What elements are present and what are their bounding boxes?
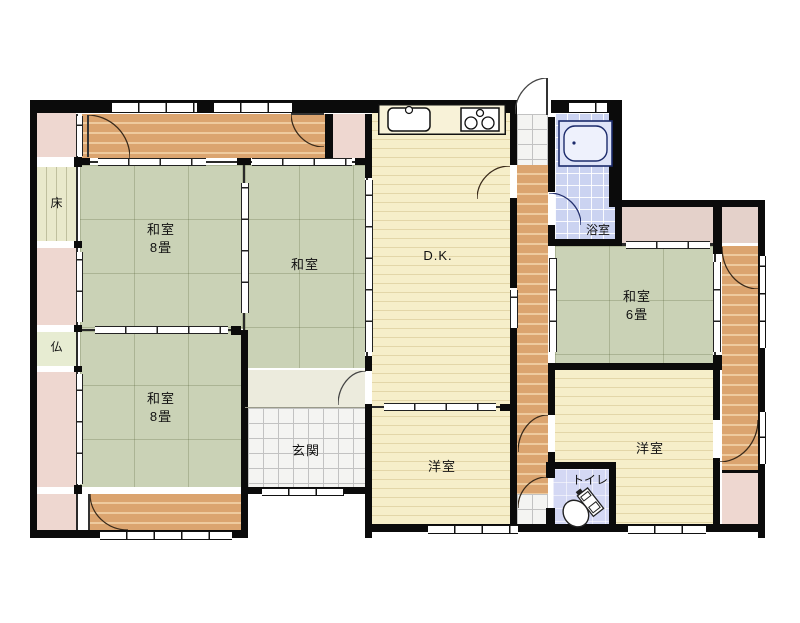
door-leaf <box>88 494 90 530</box>
wall-line <box>722 470 758 473</box>
floor-plan: 和室 8畳 和室 和室 8畳 和室 6畳 D.K. 浴室 玄関 洋室 洋室 トイ… <box>0 0 800 623</box>
wall-segment <box>713 458 720 532</box>
closet-ne2 <box>722 207 758 243</box>
wall-post <box>74 485 82 494</box>
closet-w-mid <box>37 248 76 325</box>
wall-post <box>76 158 90 165</box>
room-name: 浴室 <box>586 223 610 237</box>
sliding-door <box>713 262 721 352</box>
door-arc <box>518 415 548 452</box>
wall-post <box>365 356 372 371</box>
door-arc <box>338 371 366 405</box>
room-size: 8畳 <box>150 240 172 255</box>
room-label-washitsu8-nw: 和室 8畳 <box>121 221 201 256</box>
entrance-door <box>262 488 344 496</box>
sliding-door <box>98 158 206 166</box>
wall-segment <box>30 100 37 538</box>
wall-segment <box>365 404 372 538</box>
window <box>428 525 518 534</box>
door-arc <box>719 420 758 462</box>
wall-segment <box>609 200 765 207</box>
wall-segment <box>510 328 517 410</box>
closet-se <box>722 473 758 524</box>
room-name: 仏 <box>50 340 62 354</box>
backdoor-tile <box>517 114 548 165</box>
sliding-door <box>76 374 83 484</box>
sliding-door <box>384 403 496 411</box>
wall-segment <box>758 200 765 538</box>
bathtub-icon <box>558 120 613 172</box>
room-name: トイレ <box>572 473 608 487</box>
window <box>100 531 232 540</box>
wall-segment <box>548 239 622 246</box>
room-name: 床 <box>50 196 62 210</box>
room-name: 和室 <box>147 222 175 237</box>
room-label-yoshitsu-s: 洋室 <box>402 458 482 476</box>
door-arc <box>477 166 510 199</box>
door-arc <box>722 247 758 289</box>
window <box>759 412 766 464</box>
wall-segment <box>548 117 555 192</box>
room-label-toilet: トイレ <box>562 472 618 488</box>
room-size: 6畳 <box>626 307 648 322</box>
toilet-icon <box>560 487 606 534</box>
door-leaf <box>291 113 324 115</box>
door-arc <box>518 477 547 508</box>
door-arc <box>87 115 130 158</box>
room-name: 玄関 <box>292 443 320 458</box>
window <box>112 102 197 113</box>
wall-post <box>365 165 372 178</box>
door-arc <box>515 78 548 114</box>
room-name: 和室 <box>623 289 651 304</box>
wall-post <box>713 246 722 254</box>
wall-segment <box>548 370 555 415</box>
sliding-door <box>76 252 83 322</box>
room-label-bath: 浴室 <box>570 222 626 238</box>
closet-w-s2 <box>37 494 76 530</box>
room-label-tokonoma: 床 <box>40 195 73 211</box>
wall-segment <box>510 410 517 532</box>
wall-post <box>74 366 82 372</box>
closet-top-mid <box>333 114 365 158</box>
room-name: 洋室 <box>636 441 664 456</box>
sliding-door <box>252 158 352 166</box>
sliding-door <box>241 183 249 313</box>
door-leaf <box>546 78 548 115</box>
door-arc <box>90 494 128 530</box>
room-name: D.K. <box>423 248 452 263</box>
wall-post <box>74 325 82 332</box>
wall-segment <box>713 370 720 420</box>
sliding-door <box>549 258 557 352</box>
floor-edge-line <box>245 407 365 408</box>
sliding-door <box>95 326 228 334</box>
wall-segment <box>510 198 517 288</box>
wall-segment <box>713 207 722 246</box>
wall-segment <box>546 508 555 532</box>
wall-segment <box>548 363 722 370</box>
window <box>569 102 607 113</box>
kitchen-sink-icon <box>388 107 430 132</box>
wall-post <box>355 158 372 165</box>
closet-ne <box>622 207 713 243</box>
room-size: 8畳 <box>150 409 172 424</box>
room-label-washitsu-mid: 和室 <box>265 256 345 274</box>
room-label-butsuma: 仏 <box>40 339 73 355</box>
room-label-yoshitsu-se: 洋室 <box>610 440 690 458</box>
room-name: 洋室 <box>428 459 456 474</box>
window <box>628 525 706 534</box>
closet-w-s <box>37 372 76 487</box>
room-name: 和室 <box>147 391 175 406</box>
wall-post <box>74 241 82 248</box>
sliding-door <box>365 180 373 352</box>
door-arc <box>291 113 324 147</box>
window <box>214 102 292 113</box>
room-label-washitsu8-sw: 和室 8畳 <box>121 390 201 425</box>
sliding-door <box>626 241 710 249</box>
door-leaf <box>87 115 89 157</box>
door-arc <box>549 193 581 225</box>
sliding-door <box>76 116 83 156</box>
wall-post <box>500 404 510 411</box>
window <box>759 256 766 348</box>
room-label-genkan: 玄関 <box>276 442 336 460</box>
wall-post <box>237 158 251 165</box>
sliding-door <box>510 290 518 328</box>
wall-post <box>713 355 722 363</box>
room-label-dk: D.K. <box>408 247 468 265</box>
wall-segment <box>546 462 616 469</box>
kitchen-counter <box>378 104 506 140</box>
room-label-washitsu6: 和室 6畳 <box>597 288 677 323</box>
wall-post <box>231 326 241 335</box>
wall-segment <box>241 330 248 538</box>
kitchen-stove-icon <box>461 108 499 131</box>
room-name: 和室 <box>291 257 319 272</box>
